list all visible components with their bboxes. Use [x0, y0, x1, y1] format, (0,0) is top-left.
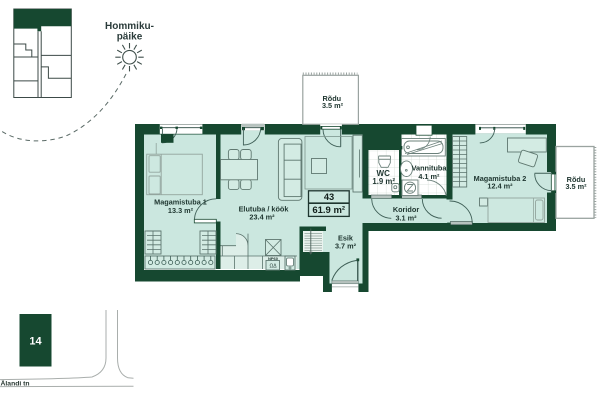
- svg-text:3.5 m²: 3.5 m²: [322, 101, 344, 110]
- svg-text:4.1 m²: 4.1 m²: [418, 172, 440, 181]
- svg-text:1.9 m²: 1.9 m²: [372, 177, 395, 186]
- svg-text:13.3 m²: 13.3 m²: [168, 206, 194, 215]
- svg-text:ΩΔ: ΩΔ: [269, 264, 277, 270]
- svg-text:61.9 m²: 61.9 m²: [312, 205, 345, 216]
- svg-text:3.5 m²: 3.5 m²: [565, 182, 587, 191]
- svg-text:43: 43: [324, 192, 334, 202]
- svg-text:päike: päike: [117, 32, 143, 43]
- svg-text:3.7 m²: 3.7 m²: [335, 242, 357, 251]
- svg-text:12.4 m²: 12.4 m²: [487, 182, 513, 191]
- svg-text:3.1 m²: 3.1 m²: [395, 214, 417, 223]
- svg-text:Hommiku-: Hommiku-: [105, 21, 154, 32]
- svg-text:NP60: NP60: [268, 256, 279, 261]
- svg-text:Älandi tn: Älandi tn: [1, 379, 30, 387]
- svg-text:23.4 m²: 23.4 m²: [249, 213, 275, 222]
- svg-text:14: 14: [29, 336, 42, 348]
